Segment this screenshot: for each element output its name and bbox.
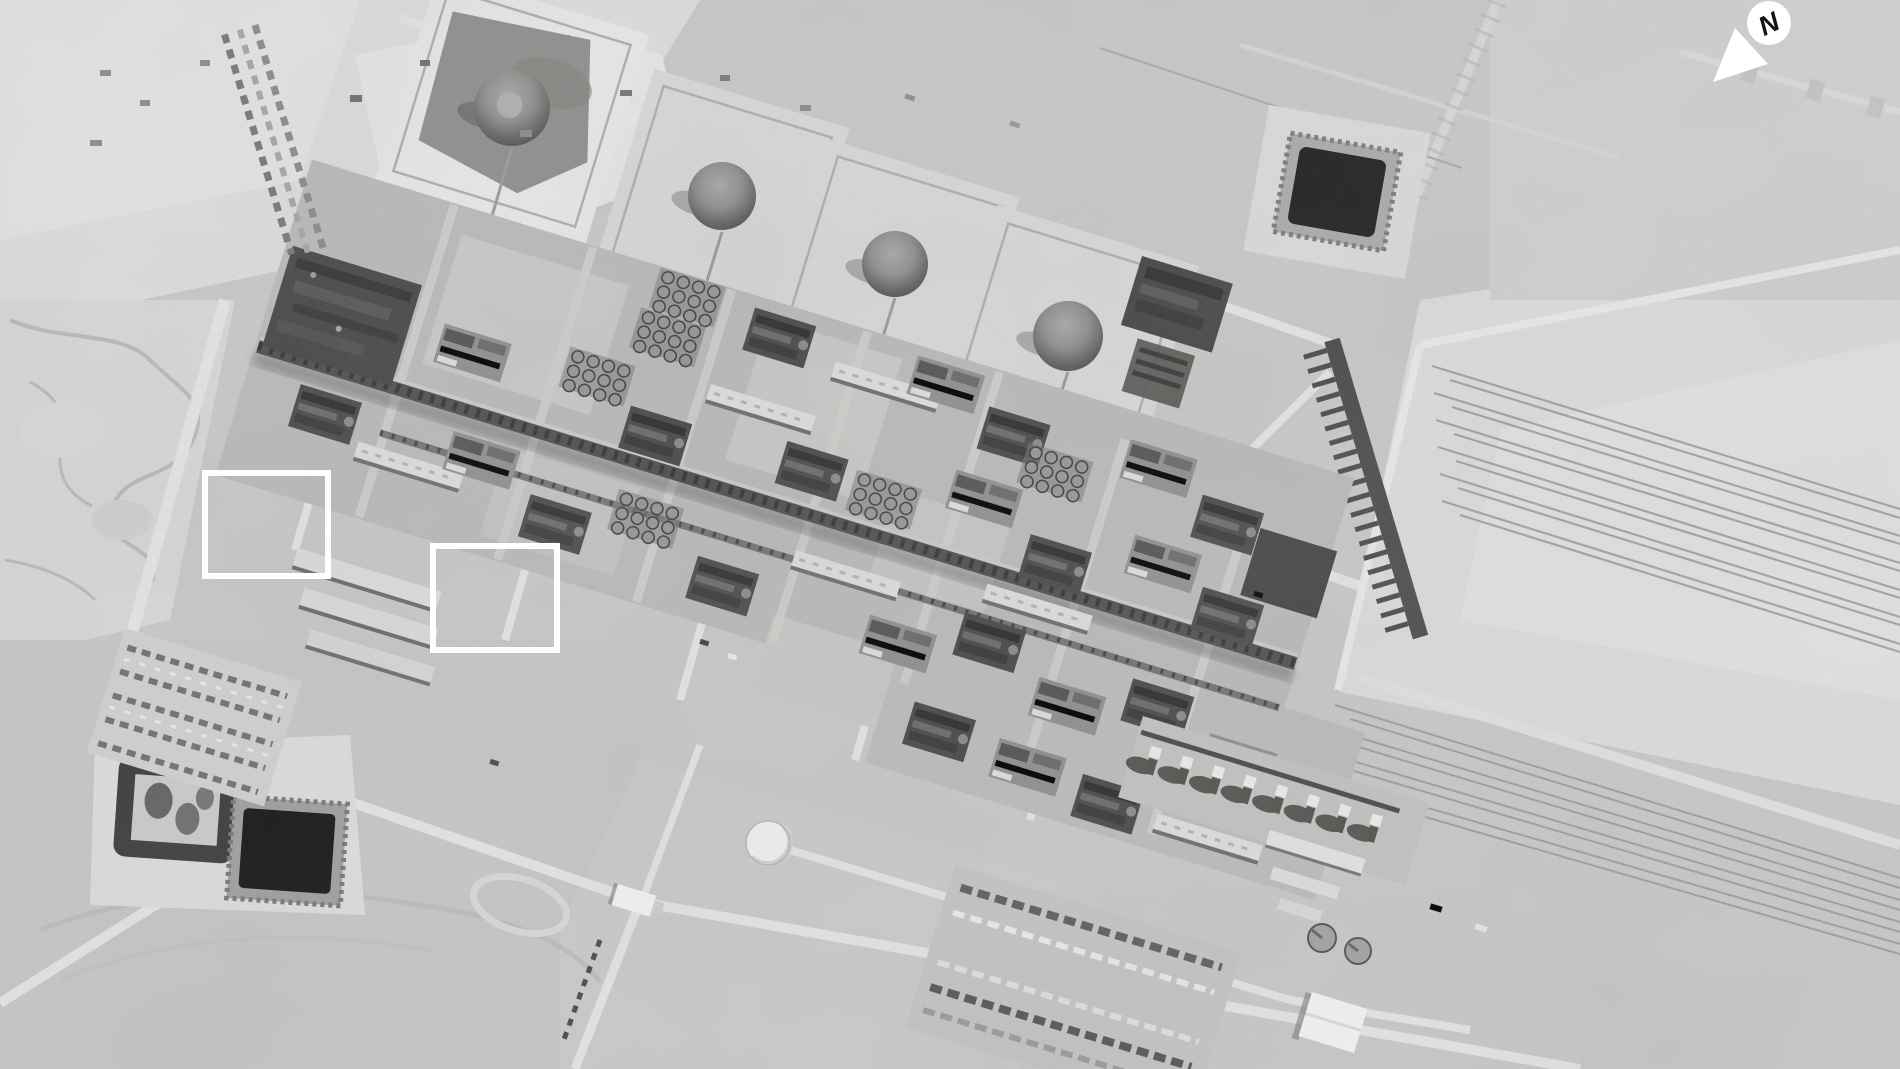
satellite-photo-canvas: N	[0, 0, 1900, 1069]
satellite-image: N	[0, 0, 1900, 1069]
film-grain	[0, 0, 1900, 1069]
